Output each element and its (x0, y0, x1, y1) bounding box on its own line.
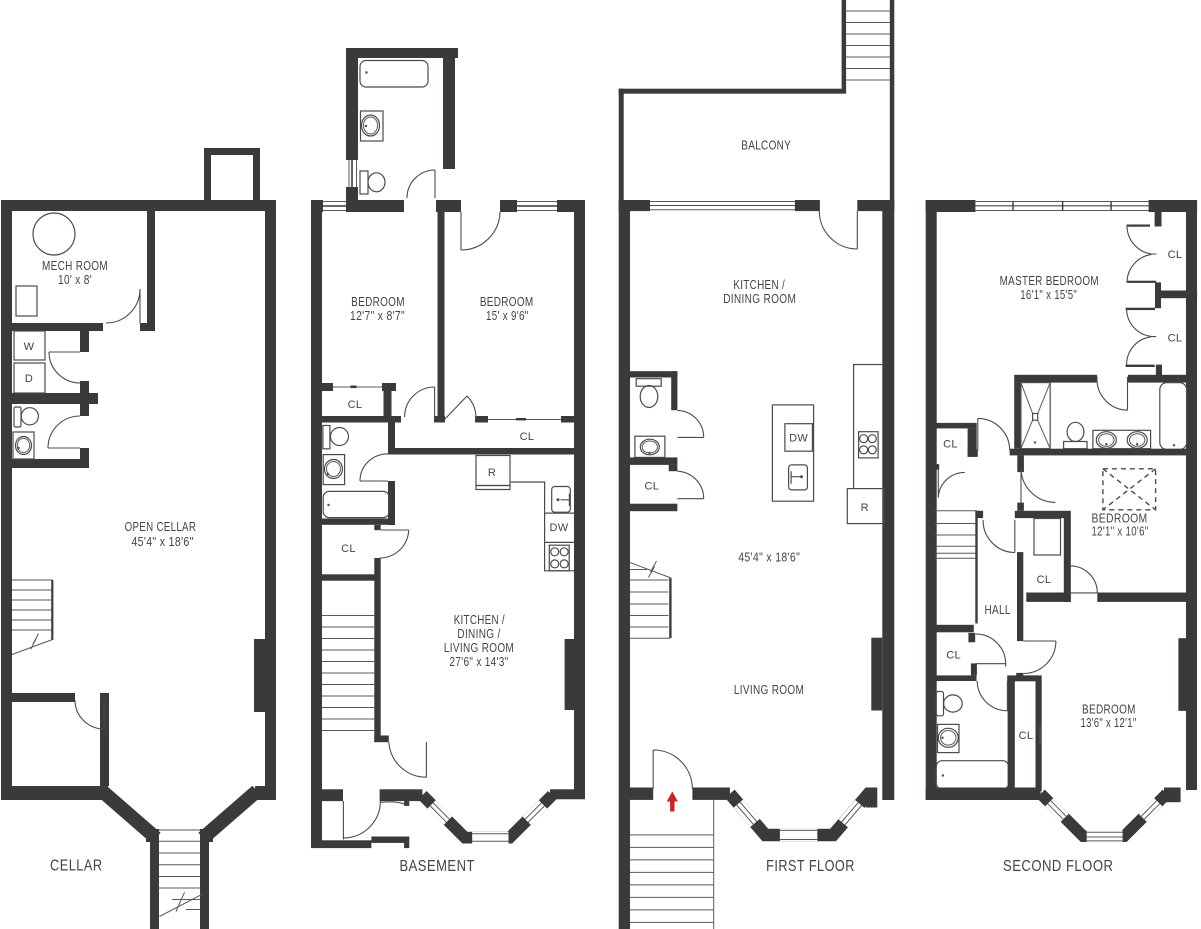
svg-text:HALL: HALL (984, 603, 1010, 617)
svg-text:DINING /: DINING / (457, 627, 500, 641)
svg-text:13'6" x 12'1": 13'6" x 12'1" (1081, 716, 1137, 730)
svg-text:BEDROOM: BEDROOM (1092, 512, 1148, 526)
svg-text:CL: CL (1168, 333, 1183, 345)
svg-text:CL: CL (946, 650, 961, 662)
svg-text:KITCHEN /: KITCHEN / (454, 613, 505, 627)
svg-text:CL: CL (341, 543, 356, 555)
svg-text:BEDROOM: BEDROOM (351, 295, 405, 309)
svg-text:D: D (25, 373, 33, 385)
svg-text:OPEN CELLAR: OPEN CELLAR (125, 520, 197, 534)
svg-text:CL: CL (1019, 730, 1034, 742)
svg-text:27'6" x 14'3": 27'6" x 14'3" (450, 655, 509, 669)
svg-text:BALCONY: BALCONY (741, 139, 791, 153)
svg-text:CL: CL (520, 431, 535, 443)
svg-text:LIVING ROOM: LIVING ROOM (734, 683, 804, 697)
svg-text:DW: DW (550, 522, 569, 534)
svg-text:SECOND FLOOR: SECOND FLOOR (1003, 858, 1113, 875)
svg-text:CELLAR: CELLAR (50, 858, 103, 875)
svg-text:12'1" x 10'6": 12'1" x 10'6" (1092, 525, 1149, 539)
svg-text:MECH ROOM: MECH ROOM (42, 259, 108, 273)
svg-text:12'7" x 8'7": 12'7" x 8'7" (350, 309, 405, 323)
svg-text:BASEMENT: BASEMENT (400, 858, 475, 875)
svg-text:CL: CL (644, 481, 659, 493)
svg-text:CL: CL (1037, 574, 1052, 586)
svg-text:R: R (488, 467, 496, 479)
svg-text:BEDROOM: BEDROOM (1082, 703, 1136, 717)
svg-text:15' x 9'6": 15' x 9'6" (486, 309, 529, 323)
svg-text:16'1" x 15'5": 16'1" x 15'5" (1020, 288, 1077, 302)
svg-text:45'4" x 18'6": 45'4" x 18'6" (738, 551, 800, 565)
svg-text:DINING ROOM: DINING ROOM (723, 292, 796, 306)
svg-text:MASTER BEDROOM: MASTER BEDROOM (1000, 274, 1099, 288)
svg-text:LIVING ROOM: LIVING ROOM (444, 641, 514, 655)
svg-text:FIRST FLOOR: FIRST FLOOR (766, 858, 855, 875)
svg-text:BEDROOM: BEDROOM (480, 295, 534, 309)
svg-text:R: R (861, 502, 869, 514)
svg-text:W: W (24, 341, 35, 353)
svg-text:CL: CL (348, 399, 363, 411)
svg-text:DW: DW (789, 433, 808, 445)
svg-text:KITCHEN /: KITCHEN / (733, 278, 785, 292)
svg-text:45'4" x 18'6": 45'4" x 18'6" (131, 535, 193, 549)
svg-text:10' x 8': 10' x 8' (58, 273, 92, 287)
svg-text:CL: CL (1168, 249, 1183, 261)
svg-text:CL: CL (943, 439, 958, 451)
